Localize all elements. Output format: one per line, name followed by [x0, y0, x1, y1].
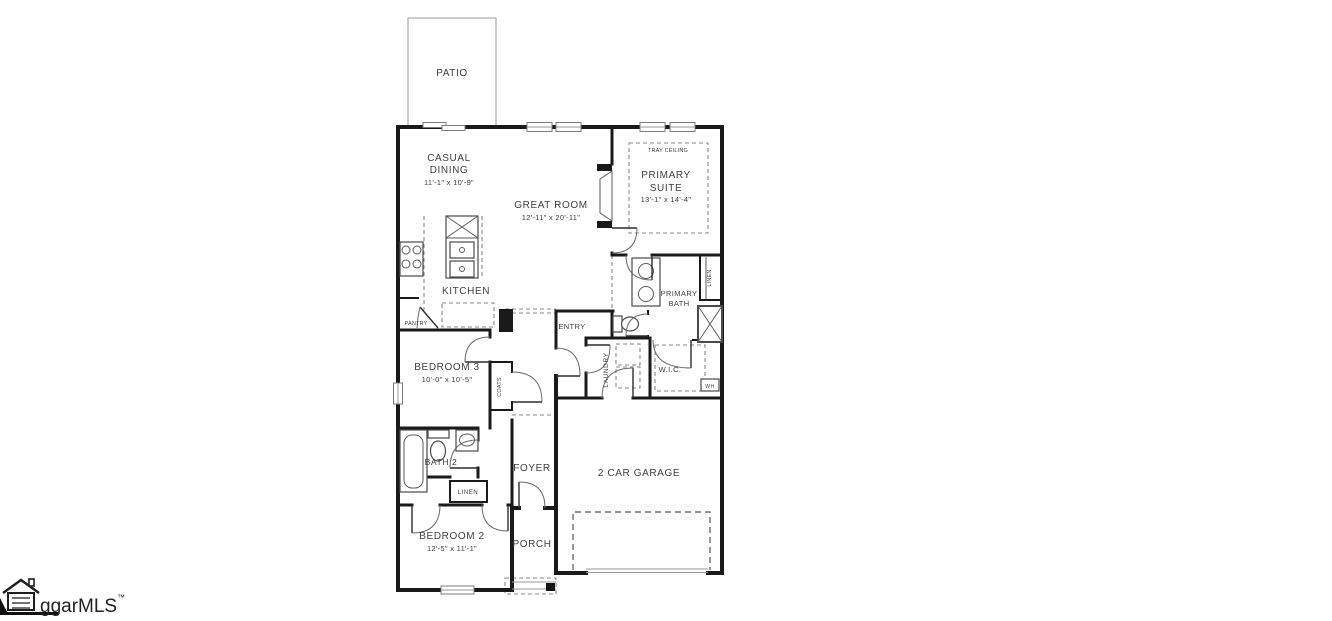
wall-block — [499, 309, 513, 332]
room-label-linen-primary: LINEN — [707, 269, 713, 286]
mls-watermark: ggarMLS ™ — [0, 579, 125, 617]
room-label-pantry: PANTRY — [404, 321, 427, 327]
room-label-bedroom3: BEDROOM 3 — [414, 362, 479, 373]
toilet-tank — [428, 430, 449, 438]
room-label-primary-suite: PRIMARY — [641, 170, 691, 181]
kitchen-fixtures — [400, 216, 478, 278]
toilet-tank — [613, 316, 622, 332]
washer-box — [616, 344, 640, 365]
room-label-great-room: GREAT ROOM — [514, 200, 587, 211]
mls-trademark: ™ — [117, 593, 125, 602]
patio-slider-door — [442, 126, 465, 131]
garage-door-apron — [573, 512, 710, 570]
room-label-casual-dining: CASUAL — [427, 153, 471, 164]
room-label-porch: PORCH — [512, 539, 551, 550]
room-dims-great-room: 12'-11" x 20'-11" — [522, 213, 580, 222]
room-label-casual-dining: DINING — [430, 165, 469, 176]
floor-plan-page: PATIO CASUAL DINING 11'-1" x 10'-9" GREA… — [0, 0, 1332, 621]
room-label-linen-hall: LINEN — [458, 490, 479, 496]
toilet-bowl — [622, 317, 639, 331]
kitchen-counter-bottom — [442, 303, 494, 327]
room-label-bedroom2: BEDROOM 2 — [419, 531, 484, 542]
mls-brand-text: ggarMLS — [40, 596, 117, 617]
room-label-primary-suite: SUITE — [650, 183, 682, 194]
room-label-bath2: BATH 2 — [425, 457, 458, 467]
room-label-kitchen: KITCHEN — [442, 286, 490, 297]
room-label-entry: ENTRY — [558, 322, 585, 331]
double-vanity — [632, 258, 660, 306]
room-dims-primary-suite: 13'-1" x 14'-4" — [641, 195, 692, 204]
room-dims-casual-dining: 11'-1" x 10'-9" — [424, 178, 474, 187]
media-niche — [597, 164, 612, 228]
tray-ceiling-note: TRAY CEILING — [648, 148, 688, 154]
room-label-primary-bath: PRIMARY — [661, 289, 698, 298]
room-label-coats: COATS — [497, 377, 503, 397]
water-heater-label: WH — [705, 384, 715, 390]
floor-plan-drawing: PATIO CASUAL DINING 11'-1" x 10'-9" GREA… — [0, 0, 1332, 621]
porch-steps — [512, 582, 556, 591]
room-dims-bedroom3: 10'-0" x 10'-5" — [422, 375, 473, 384]
garage-door — [586, 569, 708, 573]
room-dims-bedroom2: 12'-5" x 11'-1" — [427, 544, 477, 553]
room-label-garage: 2 CAR GARAGE — [598, 468, 680, 479]
room-label-patio: PATIO — [436, 68, 468, 79]
room-label-primary-bath: BATH — [668, 299, 689, 308]
room-label-wic: W.I.C. — [659, 365, 682, 374]
room-label-foyer: FOYER — [513, 463, 550, 474]
room-label-laundry: LAUNDRY — [603, 352, 610, 387]
